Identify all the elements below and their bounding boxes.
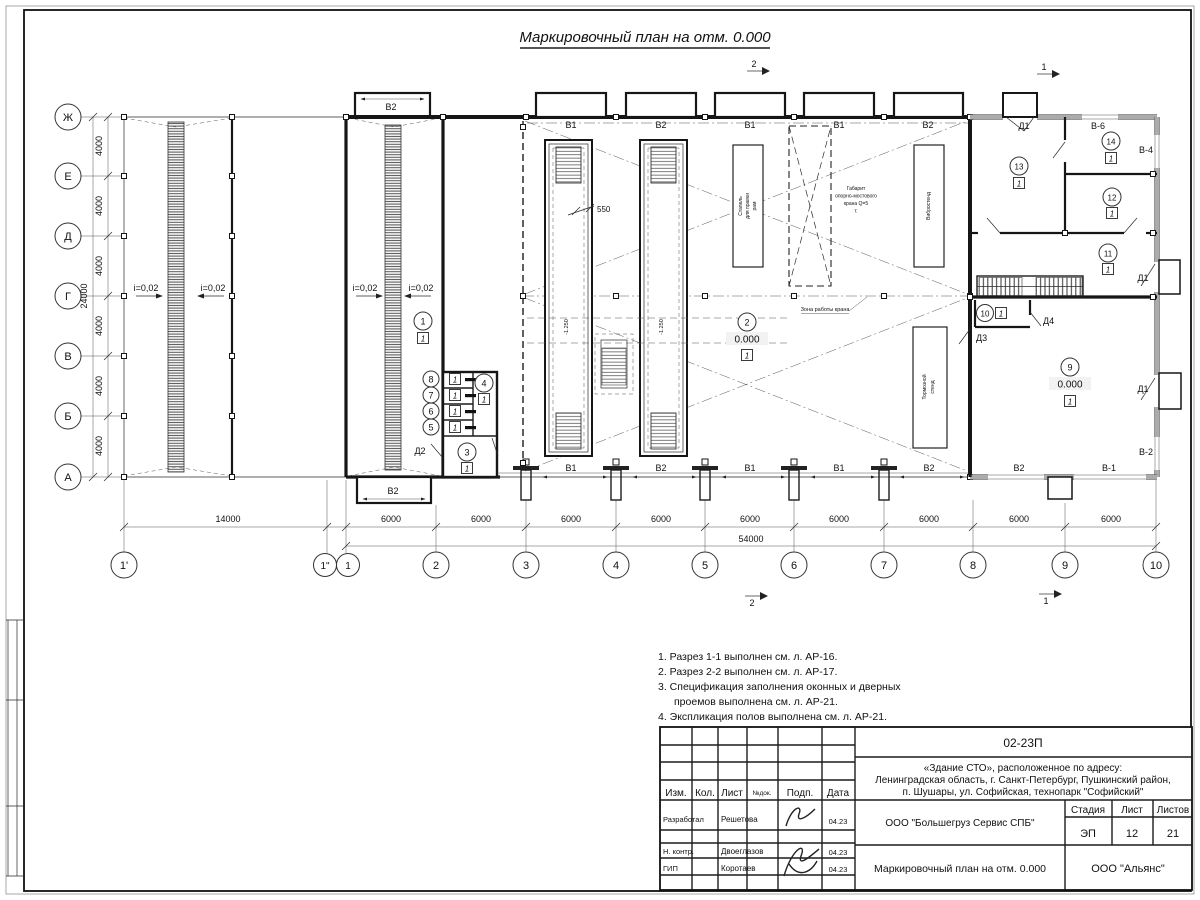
svg-text:1: 1 <box>1041 62 1046 72</box>
svg-text:В-6: В-6 <box>1091 121 1105 131</box>
svg-text:Н. контр.: Н. контр. <box>663 847 694 856</box>
inspection-pit-2: -1.250 <box>640 140 687 456</box>
svg-text:В1: В1 <box>744 463 755 473</box>
svg-text:Е: Е <box>64 171 71 183</box>
svg-text:7: 7 <box>428 391 433 401</box>
annex-gate-top: В2 <box>355 93 430 117</box>
svg-text:Стапель: Стапель <box>738 196 744 216</box>
section-mark-2-top: 2 <box>747 59 770 75</box>
svg-text:9: 9 <box>1062 560 1068 572</box>
svg-text:Ж: Ж <box>63 112 73 124</box>
svg-text:В-1: В-1 <box>1102 463 1116 473</box>
svg-text:1: 1 <box>1017 180 1021 189</box>
opening-label: В2 <box>922 120 933 130</box>
door-label-d3: Д3 <box>976 333 987 343</box>
room-tags: 1 1 2 0.000 1 3 1 4 1 5 1 6 1 7 1 8 1 9 … <box>414 132 1121 474</box>
svg-text:8: 8 <box>970 560 976 572</box>
window-v2: В-2 <box>1139 437 1161 470</box>
svg-text:1: 1 <box>345 561 351 572</box>
svg-text:04.23: 04.23 <box>829 817 848 826</box>
svg-text:ЭП: ЭП <box>1080 828 1096 840</box>
svg-text:6: 6 <box>791 560 797 572</box>
room-10-box: Д4 Д3 <box>959 300 1054 344</box>
svg-text:550: 550 <box>597 205 611 214</box>
svg-text:4000: 4000 <box>94 136 104 156</box>
svg-text:10: 10 <box>981 310 990 319</box>
svg-text:рам: рам <box>752 201 758 211</box>
svg-text:ГИП: ГИП <box>663 864 678 873</box>
svg-text:1: 1 <box>465 465 469 474</box>
svg-text:В2: В2 <box>1013 463 1024 473</box>
section-marks: 2 1 2 1 <box>745 59 1062 608</box>
svg-text:Решетова: Решетова <box>721 815 758 824</box>
svg-text:Стадия: Стадия <box>1071 805 1105 816</box>
svg-text:i=0,02: i=0,02 <box>201 283 226 293</box>
drain-channel-annex <box>385 125 401 470</box>
svg-text:Д: Д <box>64 231 72 243</box>
svg-text:2: 2 <box>433 560 439 572</box>
svg-text:2: 2 <box>749 598 754 608</box>
svg-text:Тормозной: Тормозной <box>921 374 928 399</box>
equipment-stapel: Стапель для правки рам <box>733 145 763 267</box>
svg-text:4000: 4000 <box>94 256 104 276</box>
svg-text:6000: 6000 <box>561 514 581 524</box>
svg-text:6000: 6000 <box>740 514 760 524</box>
inspection-pit-1: -1.250 <box>545 140 592 456</box>
svg-text:4000: 4000 <box>94 316 104 336</box>
drawing-sheet: Маркировочный план на отм. 0.000 2 1 2 1… <box>0 0 1200 900</box>
room-tag-2: 2 0.000 1 <box>726 313 768 361</box>
svg-text:В2: В2 <box>923 463 934 473</box>
svg-text:13: 13 <box>1015 163 1024 172</box>
svg-text:В2: В2 <box>655 463 666 473</box>
svg-text:14000: 14000 <box>215 514 240 524</box>
row-axes: Ж Е Д Г В Б А 4000 4000 4000 4000 4000 4… <box>55 104 122 490</box>
note-line: 3. Спецификация заполнения оконных и две… <box>658 681 901 693</box>
note-line: 4. Экспликация полов выполнена см. л. АР… <box>658 711 887 723</box>
svg-text:Вибростенд: Вибростенд <box>926 192 932 220</box>
col-dim-line-segments: 14000 6000 6000 6000 6000 6000 6000 6000… <box>120 514 1160 531</box>
svg-text:6000: 6000 <box>829 514 849 524</box>
svg-text:04.23: 04.23 <box>829 865 848 874</box>
annex-strip: В2 В2 i=0,02 i=0,02 Д2 <box>346 93 500 503</box>
svg-text:1: 1 <box>482 396 486 405</box>
svg-text:п. Шушары, ул. Софийская, техн: п. Шушары, ул. Софийская, технопарк "Соф… <box>903 786 1144 798</box>
company-name: ООО "Альянс" <box>1091 863 1165 875</box>
window-v6: В-6 <box>1082 113 1118 131</box>
svg-text:1: 1 <box>1106 266 1110 275</box>
drain-channel-left <box>168 122 184 472</box>
svg-text:Б: Б <box>64 411 71 423</box>
svg-text:3: 3 <box>464 448 469 458</box>
svg-text:Ленинградская область, г. Санк: Ленинградская область, г. Санкт-Петербур… <box>875 774 1171 786</box>
room-tag-12: 12 1 <box>1103 188 1121 219</box>
doc-number: 02-23П <box>1003 736 1042 750</box>
svg-text:5: 5 <box>428 423 433 433</box>
section-mark-1-bottom: 1 <box>1039 590 1062 606</box>
svg-text:4000: 4000 <box>94 436 104 456</box>
svg-text:Дата: Дата <box>827 788 850 799</box>
svg-text:11: 11 <box>1104 250 1113 259</box>
svg-text:i=0,02: i=0,02 <box>353 283 378 293</box>
svg-text:Д1: Д1 <box>1137 384 1148 394</box>
room-tag-13: 13 1 <box>1010 157 1028 189</box>
room-tag-9: 9 0.000 1 <box>1049 358 1091 407</box>
svg-text:6000: 6000 <box>651 514 671 524</box>
svg-text:14: 14 <box>1107 138 1116 147</box>
svg-text:№док.: №док. <box>752 790 771 797</box>
pit-elevation: -1.250 <box>564 319 570 335</box>
notes-block: 1. Разрез 1-1 выполнен см. л. АР-16. 2. … <box>658 651 901 723</box>
svg-text:Разработал: Разработал <box>663 815 704 824</box>
svg-text:В1: В1 <box>565 463 576 473</box>
svg-text:4000: 4000 <box>94 196 104 216</box>
svg-text:1: 1 <box>1110 210 1114 219</box>
svg-text:В2: В2 <box>387 486 398 496</box>
svg-text:стенд: стенд <box>930 380 936 393</box>
svg-text:6000: 6000 <box>1101 514 1121 524</box>
svg-text:4: 4 <box>481 379 486 389</box>
window-v4: В-4 <box>1139 135 1161 168</box>
top-gates: В1 В2 В1 В1 В2 <box>536 93 963 130</box>
svg-text:3: 3 <box>523 560 529 572</box>
svg-text:1: 1 <box>453 424 457 433</box>
svg-text:1: 1 <box>1043 596 1048 606</box>
page-title: Маркировочный план на отм. 0.000 <box>519 29 771 46</box>
svg-text:опорно-мостового: опорно-мостового <box>835 194 877 200</box>
section-mark-1-top: 1 <box>1037 62 1060 78</box>
svg-text:Д1: Д1 <box>1018 121 1029 131</box>
side-stamp <box>6 620 24 876</box>
opening-label: В2 <box>655 120 666 130</box>
svg-text:12: 12 <box>1126 828 1138 840</box>
svg-text:Лист: Лист <box>721 788 743 799</box>
door-d1-right-lower: Д1 <box>1137 373 1181 409</box>
opening-label: В1 <box>833 120 844 130</box>
svg-text:6000: 6000 <box>919 514 939 524</box>
col-axis-bubbles: 1' 1" 1 2 3 4 5 6 7 8 9 10 <box>111 552 1169 578</box>
svg-text:т.: т. <box>854 209 857 215</box>
svg-text:Д1: Д1 <box>1137 273 1148 283</box>
svg-text:04.23: 04.23 <box>829 848 848 857</box>
svg-text:0.000: 0.000 <box>1057 380 1082 391</box>
svg-text:Лист: Лист <box>1121 805 1143 816</box>
svg-text:Изм.: Изм. <box>665 788 686 799</box>
svg-text:5: 5 <box>702 560 708 572</box>
svg-text:9: 9 <box>1067 363 1072 373</box>
svg-text:2: 2 <box>751 59 756 69</box>
equipment-tormoz: Тормозной стенд <box>913 327 947 448</box>
svg-text:Кол.: Кол. <box>695 788 715 799</box>
svg-text:6: 6 <box>428 407 433 417</box>
svg-text:54000: 54000 <box>738 534 763 544</box>
svg-text:Г: Г <box>65 291 71 303</box>
col-dim-line-total: 54000 <box>342 534 1160 550</box>
door-d1-top: Д1 <box>1003 93 1037 131</box>
room-tag-1: 1 1 <box>414 312 432 344</box>
svg-text:1: 1 <box>421 335 425 344</box>
staircase <box>977 276 1083 297</box>
svg-text:Подп.: Подп. <box>787 788 814 799</box>
pit-elevation: -1.250 <box>659 319 665 335</box>
title-block: Изм. Кол. Лист №док. Подп. Дата Разработ… <box>660 727 1192 890</box>
svg-text:1: 1 <box>420 317 425 327</box>
svg-text:21: 21 <box>1167 828 1179 840</box>
svg-text:i=0,02: i=0,02 <box>409 283 434 293</box>
plan-title: Маркировочный план на отм. 0.000 <box>519 29 771 48</box>
crane-gabarit: Габарит опорно-мостового крана Q=5 т. <box>789 126 877 286</box>
column-axes: 14000 6000 6000 6000 6000 6000 6000 6000… <box>111 480 1169 578</box>
svg-text:1: 1 <box>1068 398 1072 407</box>
svg-text:4000: 4000 <box>94 376 104 396</box>
svg-text:В2: В2 <box>385 102 396 112</box>
room-tag-14: 14 1 <box>1102 132 1120 164</box>
row-dimensions: 4000 4000 4000 4000 4000 4000 24000 <box>79 113 112 481</box>
section-mark-2-bottom: 2 <box>745 592 768 608</box>
svg-text:24000: 24000 <box>79 283 89 308</box>
svg-text:Двоеглазов: Двоеглазов <box>721 847 764 856</box>
svg-text:В-4: В-4 <box>1139 145 1153 155</box>
svg-text:7: 7 <box>881 560 887 572</box>
room-tag-10: 10 1 <box>977 305 1007 322</box>
svg-text:А: А <box>64 472 72 484</box>
floor-plan-svg: Маркировочный план на отм. 0.000 2 1 2 1… <box>0 0 1200 900</box>
svg-text:В1: В1 <box>833 463 844 473</box>
note-line: 2. Разрез 2-2 выполнен см. л. АР-17. <box>658 666 837 678</box>
svg-text:крана Q=5: крана Q=5 <box>844 201 868 207</box>
note-line: 1. Разрез 1-1 выполнен см. л. АР-16. <box>658 651 837 663</box>
crane-zone-label: Зона работы крана <box>801 297 867 314</box>
canopy-structure: i=0,02 i=0,02 <box>122 115 347 480</box>
svg-text:8: 8 <box>428 375 433 385</box>
svg-text:6000: 6000 <box>1009 514 1029 524</box>
svg-text:Коротаев: Коротаев <box>721 864 756 873</box>
svg-text:6000: 6000 <box>381 514 401 524</box>
room-tag-11: 11 1 <box>1099 244 1117 275</box>
note-line: проемов выполнена см. л. АР-21. <box>674 696 838 708</box>
svg-text:Листов: Листов <box>1157 805 1190 816</box>
drawing-name: Маркировочный план на отм. 0.000 <box>874 863 1046 875</box>
svg-text:2: 2 <box>744 318 749 328</box>
equipment-vibro: Вибростенд <box>914 145 944 267</box>
annex-gate-bottom: В2 <box>357 477 431 503</box>
col-extension-lines <box>124 480 1156 553</box>
svg-text:В-2: В-2 <box>1139 447 1153 457</box>
opening-label: В1 <box>565 120 576 130</box>
door-label-d4: Д4 <box>1043 316 1054 326</box>
opening-label: В1 <box>744 120 755 130</box>
svg-text:«Здание СТО», расположенное по: «Здание СТО», расположенное по адресу: <box>924 763 1122 774</box>
svg-text:В: В <box>64 351 71 363</box>
svg-text:1: 1 <box>453 392 457 401</box>
svg-text:1': 1' <box>120 560 128 572</box>
right-block: В-6 В-4 В-2 В2 В-1 Д1 Д1 Д1 <box>959 93 1181 499</box>
svg-text:6000: 6000 <box>471 514 491 524</box>
svg-text:i=0,02: i=0,02 <box>134 283 159 293</box>
svg-text:12: 12 <box>1108 194 1117 203</box>
svg-text:0.000: 0.000 <box>734 335 759 346</box>
door-d1-right-upper: Д1 <box>1137 260 1180 294</box>
svg-text:1: 1 <box>453 376 457 385</box>
door-label-d2: Д2 <box>414 446 425 456</box>
client-name: ООО "Большегруз Сервис СПБ" <box>885 818 1035 829</box>
svg-text:1: 1 <box>1109 155 1113 164</box>
svg-text:1: 1 <box>453 408 457 417</box>
row-axis-bubbles: Ж Е Д Г В Б А <box>55 104 81 490</box>
svg-text:10: 10 <box>1150 560 1162 572</box>
svg-text:4: 4 <box>613 560 619 572</box>
windows-bottom: В2 В-1 <box>988 463 1146 499</box>
svg-text:Зона работы крана: Зона работы крана <box>801 307 851 313</box>
svg-text:для правки: для правки <box>745 193 751 219</box>
svg-text:Габарит: Габарит <box>847 186 866 192</box>
svg-text:1: 1 <box>745 352 749 361</box>
svg-text:1": 1" <box>320 561 330 572</box>
main-hall: В1 В2 В1 В1 В2 Зона работы крана Габарит… <box>344 93 973 500</box>
svg-text:1: 1 <box>999 310 1003 319</box>
